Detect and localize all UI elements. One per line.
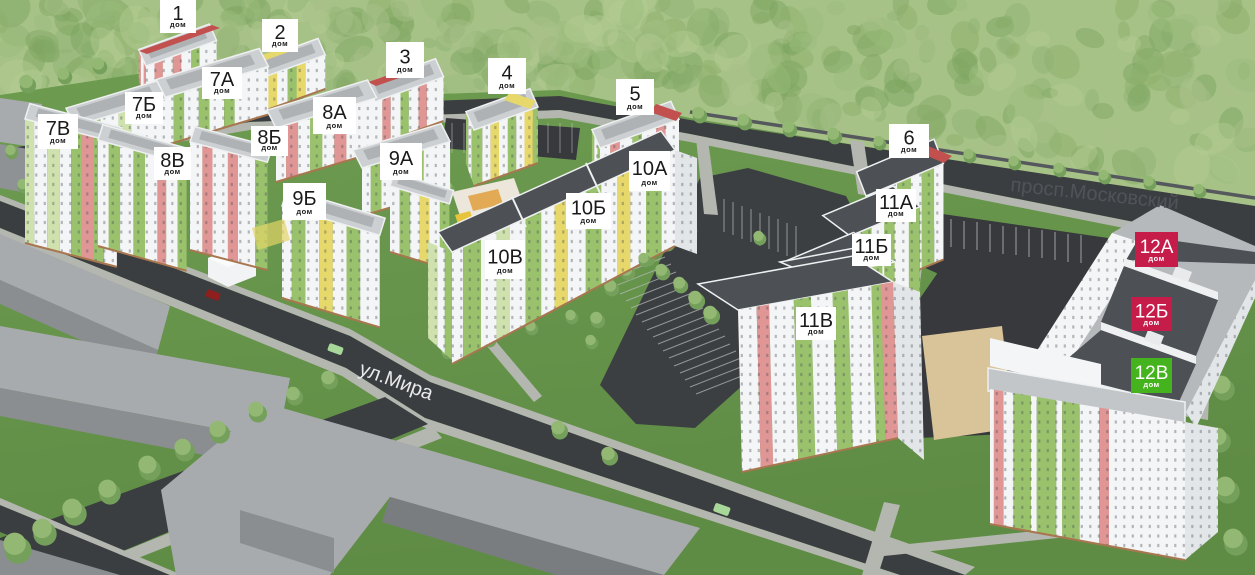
svg-text:дом: дом	[50, 136, 66, 145]
svg-text:дом: дом	[1148, 254, 1164, 263]
svg-text:дом: дом	[1143, 318, 1159, 327]
svg-text:дом: дом	[326, 121, 342, 130]
svg-text:дом: дом	[164, 167, 180, 176]
svg-text:дом: дом	[888, 209, 904, 218]
svg-text:дом: дом	[170, 20, 186, 29]
svg-text:дом: дом	[808, 327, 824, 336]
svg-text:10А: 10А	[632, 158, 668, 180]
svg-text:дом: дом	[393, 167, 409, 176]
svg-text:дом: дом	[1143, 380, 1159, 389]
svg-text:дом: дом	[397, 65, 413, 74]
svg-text:дом: дом	[627, 102, 643, 111]
svg-text:дом: дом	[497, 266, 513, 275]
svg-text:дом: дом	[580, 216, 596, 225]
svg-text:дом: дом	[863, 253, 879, 262]
svg-text:дом: дом	[641, 178, 657, 187]
svg-text:дом: дом	[214, 86, 230, 95]
svg-text:дом: дом	[499, 81, 515, 90]
svg-text:дом: дом	[901, 145, 917, 154]
svg-text:дом: дом	[272, 39, 288, 48]
svg-text:дом: дом	[261, 143, 277, 152]
svg-text:дом: дом	[136, 111, 152, 120]
svg-text:дом: дом	[296, 207, 312, 216]
